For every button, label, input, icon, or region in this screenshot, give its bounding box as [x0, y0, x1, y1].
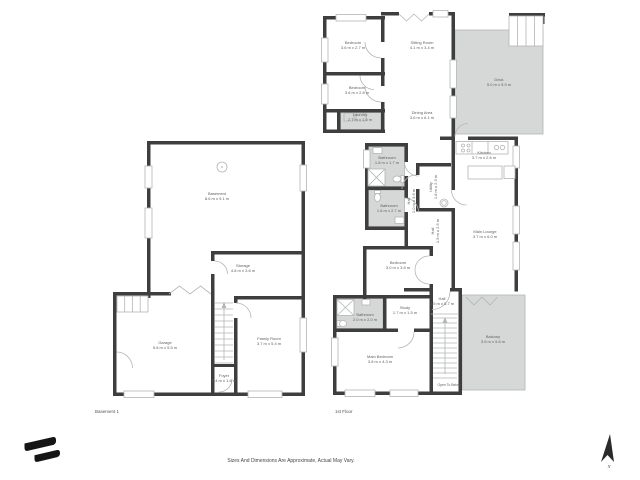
room-label-family-room: Family Room 3.7 m x 5.4 m	[257, 336, 281, 346]
sink-icon	[395, 217, 404, 224]
room-label-laundry: Laundry 2.7 m x 1.6 m	[348, 112, 372, 122]
room-dims: 2.5 m x 5.7 m	[430, 301, 454, 306]
first-floor-stairs-icon	[431, 314, 458, 378]
room-dims: 3.6 m x 6.1 m	[410, 115, 434, 120]
room-label-main-bedroom: Main Bedroom 3.8 m x 4.3 m	[367, 354, 393, 364]
toilet-icon	[375, 191, 381, 202]
room-label-garage: Garage 5.8 m x 5.5 m	[153, 340, 177, 350]
room-dims: 1.0 m x 3.6 m	[411, 189, 416, 213]
room-label-basement: Basement 8.6 m x 9.1 m	[205, 191, 229, 201]
toilet-icon	[393, 176, 404, 183]
room-label-hall2: Hall 1.9 m x 2.5 m	[430, 219, 440, 243]
room-dims: 3.6 m x 2.7 m	[341, 45, 365, 50]
room-dims: 8.6 m x 9.1 m	[205, 196, 229, 201]
shower-icon	[337, 300, 354, 316]
kitchen-counter-icon	[456, 142, 515, 180]
floor-title-first-floor: 1st Floor	[335, 409, 353, 414]
room-label-dining-area: Dining Area 3.6 m x 6.1 m	[410, 110, 434, 120]
room-dims: 3.7 m x 5.4 m	[257, 341, 281, 346]
open-to-below-label: Open To Below	[438, 383, 461, 387]
room-label-hall3: Hall 2.5 m x 5.7 m	[430, 296, 454, 306]
room-label-bathroom1: Bathroom 1.8 m x 1.7 m	[375, 155, 399, 165]
room-label-hall1: Hall 1.0 m x 3.6 m	[406, 189, 416, 213]
room-dims: 3.6 m x 2.8 m	[345, 90, 369, 95]
room-dims: 1.8 m x 2.3 m	[433, 175, 438, 199]
shower-icon	[368, 169, 385, 186]
floor-plan-drawing	[0, 0, 640, 480]
floor-plan-page: Basement 8.6 m x 9.1 m Storage 4.8 m x 3…	[0, 0, 640, 480]
toilet-icon	[337, 321, 347, 327]
room-dims: 2.0 m x 2.0 m	[353, 317, 377, 322]
room-label-bedroom2: Bedroom 3.6 m x 2.8 m	[345, 85, 369, 95]
compass-north-icon	[601, 434, 614, 462]
room-label-study: Study 1.7 m x 1.5 m	[393, 305, 417, 315]
room-label-deck: Deck 5.0 m x 5.9 m	[487, 77, 511, 87]
room-dims: 5.0 m x 5.9 m	[487, 82, 511, 87]
sink-icon	[362, 300, 370, 306]
basement-stairs-icon	[215, 302, 233, 363]
room-label-storage: Storage 4.8 m x 3.6 m	[231, 263, 255, 273]
room-dims: 1.8 m x 1.7 m	[375, 160, 399, 165]
room-name: Open To Below	[438, 383, 461, 387]
room-label-main-lounge: Main Lounge 3.7 m x 6.0 m	[473, 229, 497, 239]
room-label-utility: Utility 1.8 m x 2.3 m	[428, 175, 438, 199]
ceiling-symbol-icon	[217, 162, 227, 172]
room-label-sitting-room: Sitting Room 4.1 m x 3.4 m	[410, 40, 434, 50]
room-dims: 1.6 m x 2.7 m	[377, 208, 401, 213]
room-dims: 3.7 m x 6.0 m	[473, 234, 497, 239]
room-dims: 3.8 m x 4.3 m	[367, 359, 393, 364]
basement-walls	[113, 141, 305, 396]
room-dims: 4.8 m x 3.6 m	[231, 268, 255, 273]
room-label-bathroom2: Bathroom 1.6 m x 2.7 m	[377, 203, 401, 213]
washer-icon	[440, 199, 448, 207]
floor-title-basement: Basement 1	[95, 409, 119, 414]
garage-closet-icon	[117, 296, 148, 312]
room-label-bedroom3: Bedroom 3.0 m x 3.6 m	[386, 260, 410, 270]
room-dims: 2.7 m x 1.6 m	[348, 117, 372, 122]
room-dims: 3.5 m x 5.6 m	[481, 339, 505, 344]
room-dims: 1.4 m x 1.6 m	[212, 378, 236, 383]
deck-steps-icon	[509, 16, 543, 46]
room-dims: 5.8 m x 5.5 m	[153, 345, 177, 350]
disclaimer-text: Sizes And Dimensions Are Approximate, Ac…	[0, 458, 582, 464]
room-dims: 3.0 m x 3.6 m	[386, 265, 410, 270]
room-label-foyer: Foyer 1.4 m x 1.6 m	[212, 373, 236, 383]
room-dims: 4.1 m x 3.4 m	[410, 45, 434, 50]
room-dims: 1.9 m x 2.5 m	[435, 219, 440, 243]
room-label-balcony: Balcony 3.5 m x 5.6 m	[481, 334, 505, 344]
compass-north-label: N	[601, 464, 617, 469]
room-label-bathroom3: Bathroom 2.0 m x 2.0 m	[353, 312, 377, 322]
room-dims: 3.7 m x 2.6 m	[472, 155, 496, 160]
room-label-kitchen: Kitchen 3.7 m x 2.6 m	[472, 150, 496, 160]
room-dims: 1.7 m x 1.5 m	[393, 310, 417, 315]
sink-icon	[373, 148, 382, 154]
room-label-bedroom1: Bedroom 3.6 m x 2.7 m	[341, 40, 365, 50]
